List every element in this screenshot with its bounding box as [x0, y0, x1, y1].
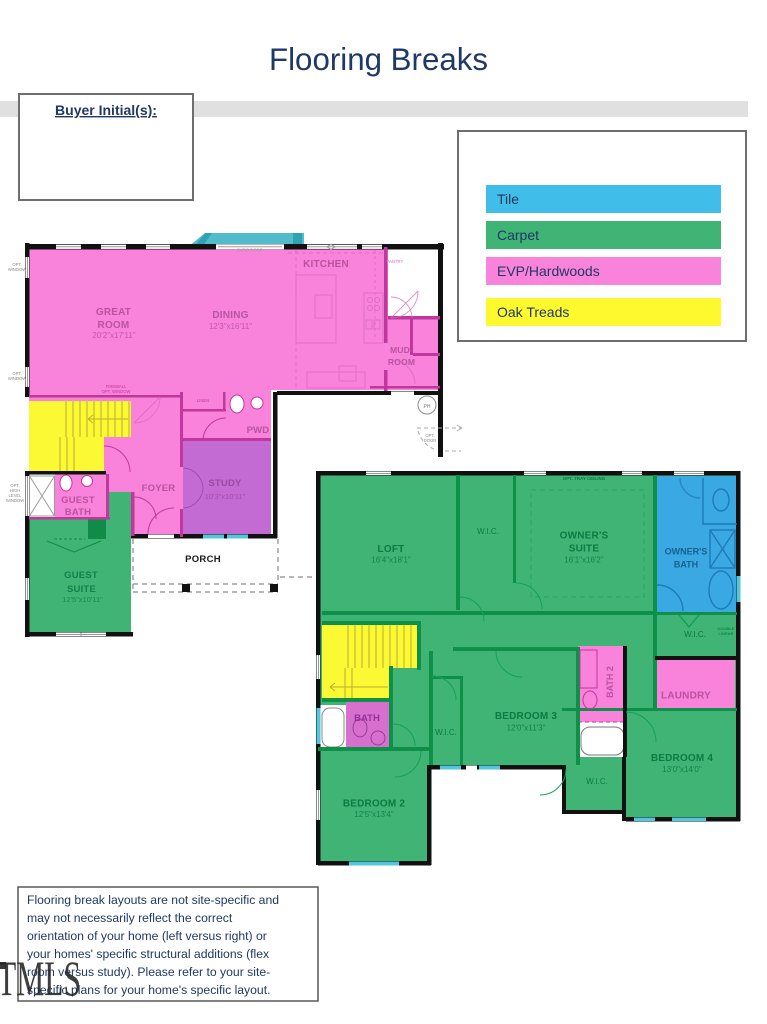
svg-text:W.I.C.: W.I.C.	[435, 728, 457, 737]
svg-text:LOFT: LOFT	[378, 544, 405, 555]
svg-text:BATH: BATH	[65, 507, 91, 518]
svg-text:DOOR: DOOR	[424, 438, 437, 443]
svg-text:WINDOW: WINDOW	[8, 376, 26, 381]
svg-text:may not necessarily reflect th: may not necessarily reflect the correct	[27, 911, 233, 925]
svg-text:Oak Treads: Oak Treads	[497, 304, 569, 320]
svg-text:FOYER: FOYER	[142, 483, 176, 494]
svg-text:DINING: DINING	[212, 310, 248, 321]
svg-text:STUDY: STUDY	[208, 478, 242, 489]
svg-text:EVP/Hardwoods: EVP/Hardwoods	[497, 263, 600, 279]
svg-text:OWNER'S: OWNER'S	[560, 531, 609, 542]
svg-text:GREAT: GREAT	[96, 307, 131, 318]
svg-text:TMLS: TMLS	[0, 950, 81, 1006]
svg-text:PATIO DOOR: PATIO DOOR	[237, 248, 263, 253]
svg-text:BEDROOM 3: BEDROOM 3	[495, 711, 558, 722]
svg-text:PH: PH	[424, 404, 431, 410]
svg-text:W.I.C.: W.I.C.	[477, 527, 499, 536]
svg-text:WINDOW: WINDOW	[8, 267, 26, 272]
svg-text:ROOM: ROOM	[388, 357, 415, 367]
svg-text:WINDOW: WINDOW	[6, 498, 24, 503]
svg-text:KITCHEN: KITCHEN	[303, 259, 349, 270]
svg-text:PWD: PWD	[247, 425, 270, 436]
svg-text:Flooring Breaks: Flooring Breaks	[269, 41, 488, 77]
svg-text:Tile: Tile	[497, 191, 519, 207]
svg-text:OWNER'S: OWNER'S	[665, 547, 708, 557]
svg-text:12'5"x10'11": 12'5"x10'11"	[62, 595, 103, 604]
svg-text:BATH 2: BATH 2	[605, 666, 615, 698]
svg-text:12'0"x11'3": 12'0"x11'3"	[507, 724, 546, 733]
svg-text:LINEAR: LINEAR	[719, 631, 734, 636]
svg-text:MUD-: MUD-	[390, 345, 413, 355]
svg-text:OPT. TRAY CEILING: OPT. TRAY CEILING	[563, 476, 606, 481]
svg-text:orientation of your home (left: orientation of your home (left versus ri…	[27, 929, 267, 943]
svg-text:10'3"x10'11": 10'3"x10'11"	[205, 492, 246, 501]
svg-text:Buyer Initial(s):: Buyer Initial(s):	[55, 102, 157, 118]
svg-text:12'3"x16'11": 12'3"x16'11"	[209, 322, 252, 331]
svg-text:PANTRY: PANTRY	[387, 259, 404, 264]
svg-text:BATH: BATH	[354, 713, 380, 724]
svg-text:PORCH: PORCH	[185, 554, 221, 565]
svg-text:GUEST: GUEST	[64, 570, 98, 581]
svg-text:Carpet: Carpet	[497, 227, 539, 243]
svg-text:SUITE: SUITE	[569, 544, 600, 555]
svg-text:Flooring break layouts are not: Flooring break layouts are not site-spec…	[27, 893, 279, 907]
svg-text:LINEN: LINEN	[197, 398, 209, 403]
svg-text:GUEST: GUEST	[61, 495, 95, 506]
svg-text:16'1"x16'2": 16'1"x16'2"	[564, 556, 604, 565]
svg-text:16'4"x18'1": 16'4"x18'1"	[371, 556, 411, 565]
svg-text:SUITE: SUITE	[67, 584, 96, 595]
svg-text:12'5"x13'4": 12'5"x13'4"	[354, 810, 394, 819]
svg-text:OPT. WINDOW: OPT. WINDOW	[102, 389, 131, 394]
svg-text:20'2"x17'11": 20'2"x17'11"	[92, 331, 135, 340]
svg-text:W.I.C.: W.I.C.	[586, 777, 608, 786]
svg-text:BEDROOM 4: BEDROOM 4	[651, 753, 714, 764]
svg-text:13'0"x14'0": 13'0"x14'0"	[662, 765, 702, 774]
svg-text:BEDROOM 2: BEDROOM 2	[343, 799, 406, 810]
svg-text:W.I.C.: W.I.C.	[684, 630, 706, 639]
svg-text:ROOM: ROOM	[98, 320, 130, 331]
svg-text:BATH: BATH	[674, 560, 698, 570]
svg-text:LAUNDRY: LAUNDRY	[661, 691, 711, 702]
